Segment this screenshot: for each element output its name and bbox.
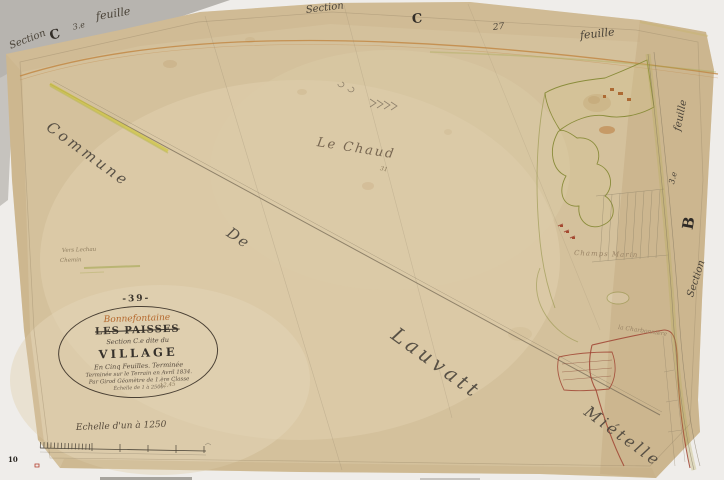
scale-label: Echelle d'un à 1250 [76, 421, 167, 433]
cartouche-detail-4: Échelle de 1 à 2500. [113, 384, 165, 392]
display-word-commune: Commune [44, 119, 132, 189]
lieu-dit-champs-marin: Champs Marin [574, 250, 639, 259]
section-label-right-edge: Section [686, 259, 707, 298]
parcel-number-le-chaud: 31 [379, 166, 388, 173]
cartouche-section-name: VILLAGE [98, 344, 177, 361]
cadastral-map-scan: Section C 3.e feuille Section C 27 feuil… [0, 0, 724, 480]
lieu-dit-le-chaud: Le Chaud [316, 136, 396, 161]
sheet-number-right-edge: 3.e [668, 171, 679, 185]
lieu-dit-la-charbonniere: la Charbonnière [618, 325, 668, 338]
plate-number: -39- [54, 291, 218, 307]
section-letter-top-center: C [412, 12, 423, 26]
section-letter-right-edge: B [681, 216, 698, 231]
section-letter-top-left: C [48, 28, 61, 43]
margin-note-line2: Chemin [60, 258, 82, 264]
feuille-label-top-right: feuille [579, 26, 615, 41]
parcel-number-top: 27 [493, 23, 505, 33]
margin-note-line1: Vers Lechau [62, 248, 96, 255]
cartouche-oval: Bonnefontaine LES PAISSES Section C.e di… [57, 303, 220, 401]
display-word-lauvatt: Lauvatt [388, 324, 485, 402]
sheet-number-top-left: 3.e [72, 21, 86, 32]
map-labels: Section C 3.e feuille Section C 27 feuil… [0, 0, 724, 480]
feuille-label-right-edge: feuille [673, 99, 689, 132]
display-word-mietelle: Miételle [581, 404, 664, 470]
display-word-de: De [224, 225, 253, 251]
section-label-top-center: Section [305, 1, 344, 16]
page-stamp: 10 [8, 456, 18, 463]
feuille-label-top-left: feuille [95, 6, 131, 22]
title-cartouche: -39- Bonnefontaine LES PAISSES Section C… [54, 291, 222, 407]
section-label-top-left: Section [8, 29, 47, 52]
